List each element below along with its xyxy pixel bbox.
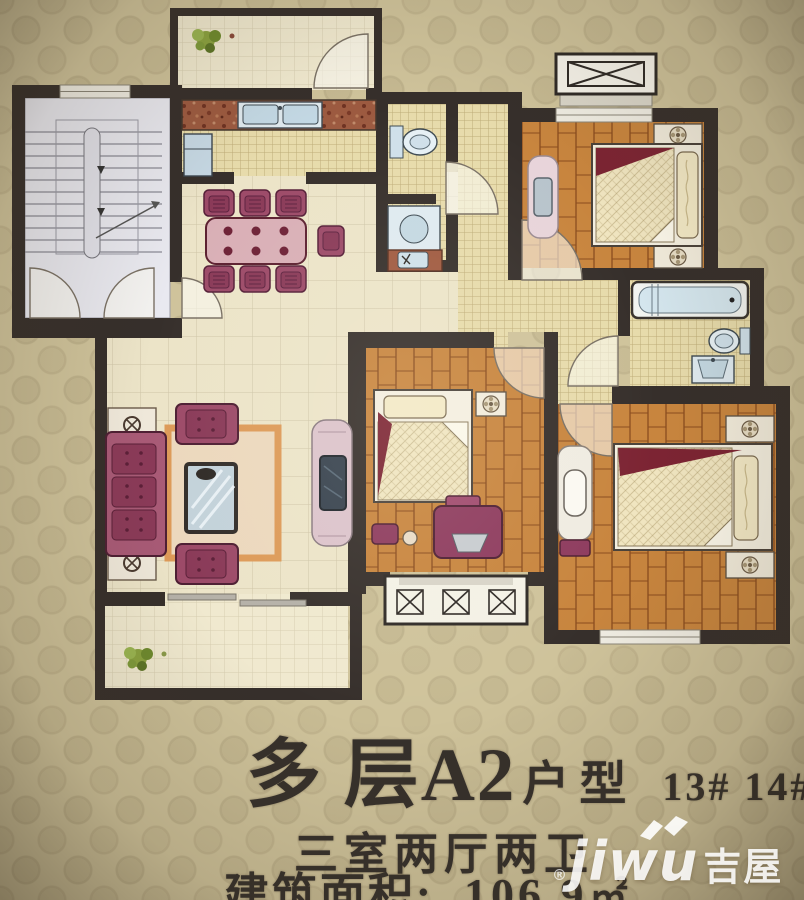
bedroom-middle-bay-window (385, 576, 527, 624)
double-bed (614, 444, 772, 550)
sliding-door-panel (240, 600, 306, 606)
dining-chair (276, 266, 306, 292)
nightstand (476, 392, 506, 416)
area-label: 建筑面积: (224, 858, 434, 900)
corridor-floor (458, 280, 618, 332)
watermark-cn: 吉屋 (703, 836, 783, 891)
plant-berry (230, 34, 235, 39)
bathtub (632, 282, 748, 318)
dining-chair (204, 266, 234, 292)
stair-rail (84, 128, 100, 258)
tv (320, 456, 346, 510)
dining-chair (240, 190, 270, 216)
bedroom-top-right-window (556, 94, 652, 122)
plan-title-row: 多 层A2 户型 13# 14# (246, 738, 804, 814)
tv-stand (312, 420, 352, 546)
toilet (709, 328, 750, 354)
stool (372, 524, 398, 544)
side-chair (318, 226, 344, 256)
plant-berry (162, 652, 167, 657)
ac-bay-box (556, 54, 656, 94)
watermark-latin: jiwu (569, 840, 698, 883)
dining-chair (276, 190, 306, 216)
nightstand (654, 124, 702, 146)
sofa (106, 432, 166, 556)
nightstand (654, 246, 702, 268)
bathroom-sink (692, 356, 734, 383)
nightstand (726, 552, 774, 578)
armchair (176, 404, 238, 444)
dining-table (206, 218, 306, 264)
building-numbers: 13# 14# (662, 763, 804, 810)
plan-title: 多 层A2 (246, 738, 516, 813)
floor-lamp (403, 531, 417, 545)
jiwu-logo-icon (636, 810, 696, 846)
dining-chair (240, 266, 270, 292)
vanity-sink (388, 250, 442, 271)
bedroom-bottom-right-window (600, 630, 700, 644)
coffee-table (186, 464, 236, 532)
dresser (528, 156, 558, 238)
nightstand (726, 416, 774, 442)
watermark: ® jiwu 吉屋 (552, 836, 783, 891)
armchair (176, 544, 238, 584)
south-balcony-floor (105, 594, 348, 690)
wardrobe-cabinet (558, 446, 592, 556)
toilet (390, 126, 437, 158)
floor-plan-photo: 多 层A2 户型 13# 14# 三室两厅两卫 建筑面积: 106.9 ㎡ ® … (0, 0, 804, 900)
kitchen-sink (238, 102, 322, 128)
double-bed (592, 144, 702, 246)
refrigerator (184, 134, 212, 176)
pillow (384, 396, 446, 418)
single-bed (374, 390, 472, 502)
dresser-with-mirror (434, 496, 502, 558)
washing-machine (388, 206, 440, 252)
sliding-door-panel (168, 594, 236, 600)
registered-mark: ® (552, 866, 567, 884)
dining-chair (204, 190, 234, 216)
stairwell-window (60, 85, 130, 98)
plan-title-type: 户型 (522, 745, 636, 814)
